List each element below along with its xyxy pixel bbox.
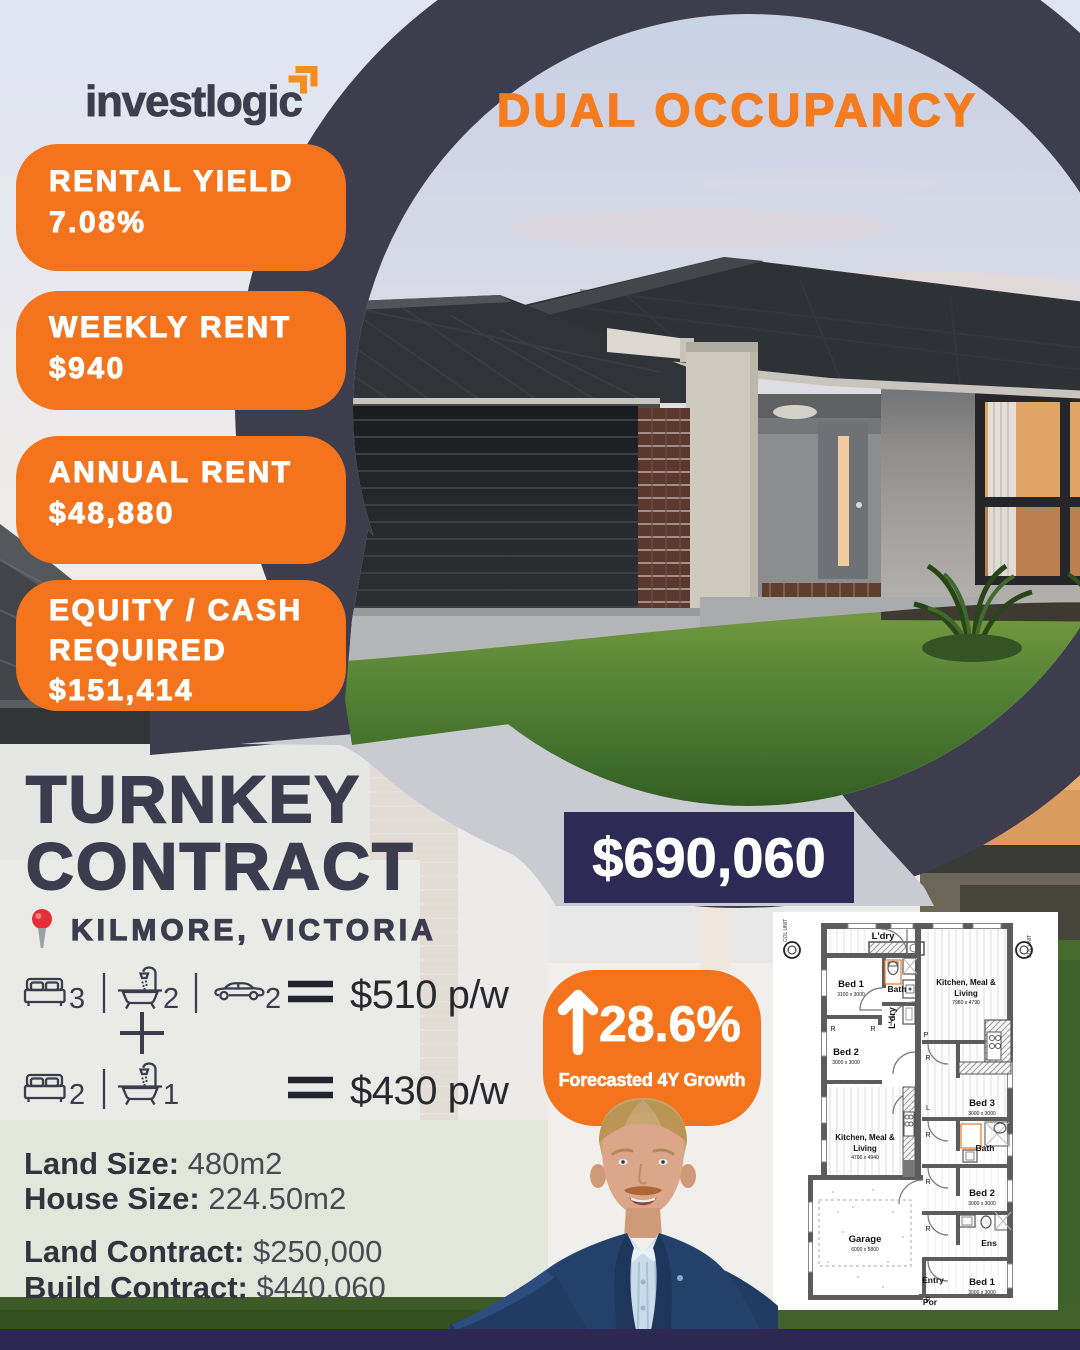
svg-text:$510 p/w: $510 p/w	[350, 973, 509, 1017]
svg-text:Bed 2: Bed 2	[969, 1188, 995, 1199]
svg-text:R: R	[870, 1026, 875, 1033]
svg-text:3: 3	[69, 983, 85, 1015]
svg-text:Entry: Entry	[922, 1275, 944, 1285]
svg-text:3000 x 3000: 3000 x 3000	[832, 1060, 860, 1066]
svg-text:R: R	[925, 1226, 930, 1233]
svg-text:R: R	[830, 1026, 835, 1033]
svg-text:Garage: Garage	[849, 1234, 882, 1245]
svg-text:4700 x 4940: 4700 x 4940	[851, 1155, 879, 1161]
svg-text:7980 x 4790: 7980 x 4790	[952, 1000, 980, 1006]
svg-text:L'dry: L'dry	[887, 1007, 897, 1029]
svg-text:Kitchen, Meal &: Kitchen, Meal &	[835, 1133, 895, 1142]
svg-text:Living: Living	[954, 989, 978, 998]
svg-text:Bath: Bath	[888, 984, 907, 994]
svg-text:Bed 3: Bed 3	[969, 1098, 995, 1109]
svg-text:2: 2	[265, 983, 281, 1015]
svg-text:Living: Living	[853, 1144, 877, 1153]
svg-text:L: L	[926, 1105, 930, 1112]
svg-text:2: 2	[69, 1079, 85, 1111]
svg-text:COL UNIT: COL UNIT	[1027, 935, 1033, 958]
svg-text:1: 1	[163, 1079, 179, 1111]
svg-text:3000 x 3000: 3000 x 3000	[968, 1201, 996, 1207]
svg-text:R: R	[925, 1132, 930, 1139]
svg-text:Kitchen, Meal &: Kitchen, Meal &	[936, 978, 996, 987]
svg-text:3000 x 3000: 3000 x 3000	[968, 1111, 996, 1117]
svg-text:Bed 1: Bed 1	[969, 1277, 996, 1288]
svg-text:Bed 1: Bed 1	[838, 979, 865, 990]
svg-text:P: P	[924, 1032, 929, 1039]
svg-text:COL UNIT: COL UNIT	[783, 919, 789, 942]
svg-text:Bed 2: Bed 2	[833, 1047, 859, 1058]
svg-text:Ens: Ens	[981, 1238, 997, 1248]
svg-text:3100 x 3000: 3100 x 3000	[837, 992, 865, 998]
svg-text:L'dry: L'dry	[872, 931, 896, 942]
svg-text:Bath: Bath	[976, 1143, 995, 1153]
svg-text:R: R	[925, 1055, 930, 1062]
svg-text:R: R	[925, 1297, 930, 1304]
svg-text:3000 x 3000: 3000 x 3000	[968, 1290, 996, 1296]
svg-text:investlogic: investlogic	[85, 77, 302, 126]
svg-text:6000 x 5800: 6000 x 5800	[851, 1247, 879, 1253]
svg-text:R: R	[925, 1179, 930, 1186]
